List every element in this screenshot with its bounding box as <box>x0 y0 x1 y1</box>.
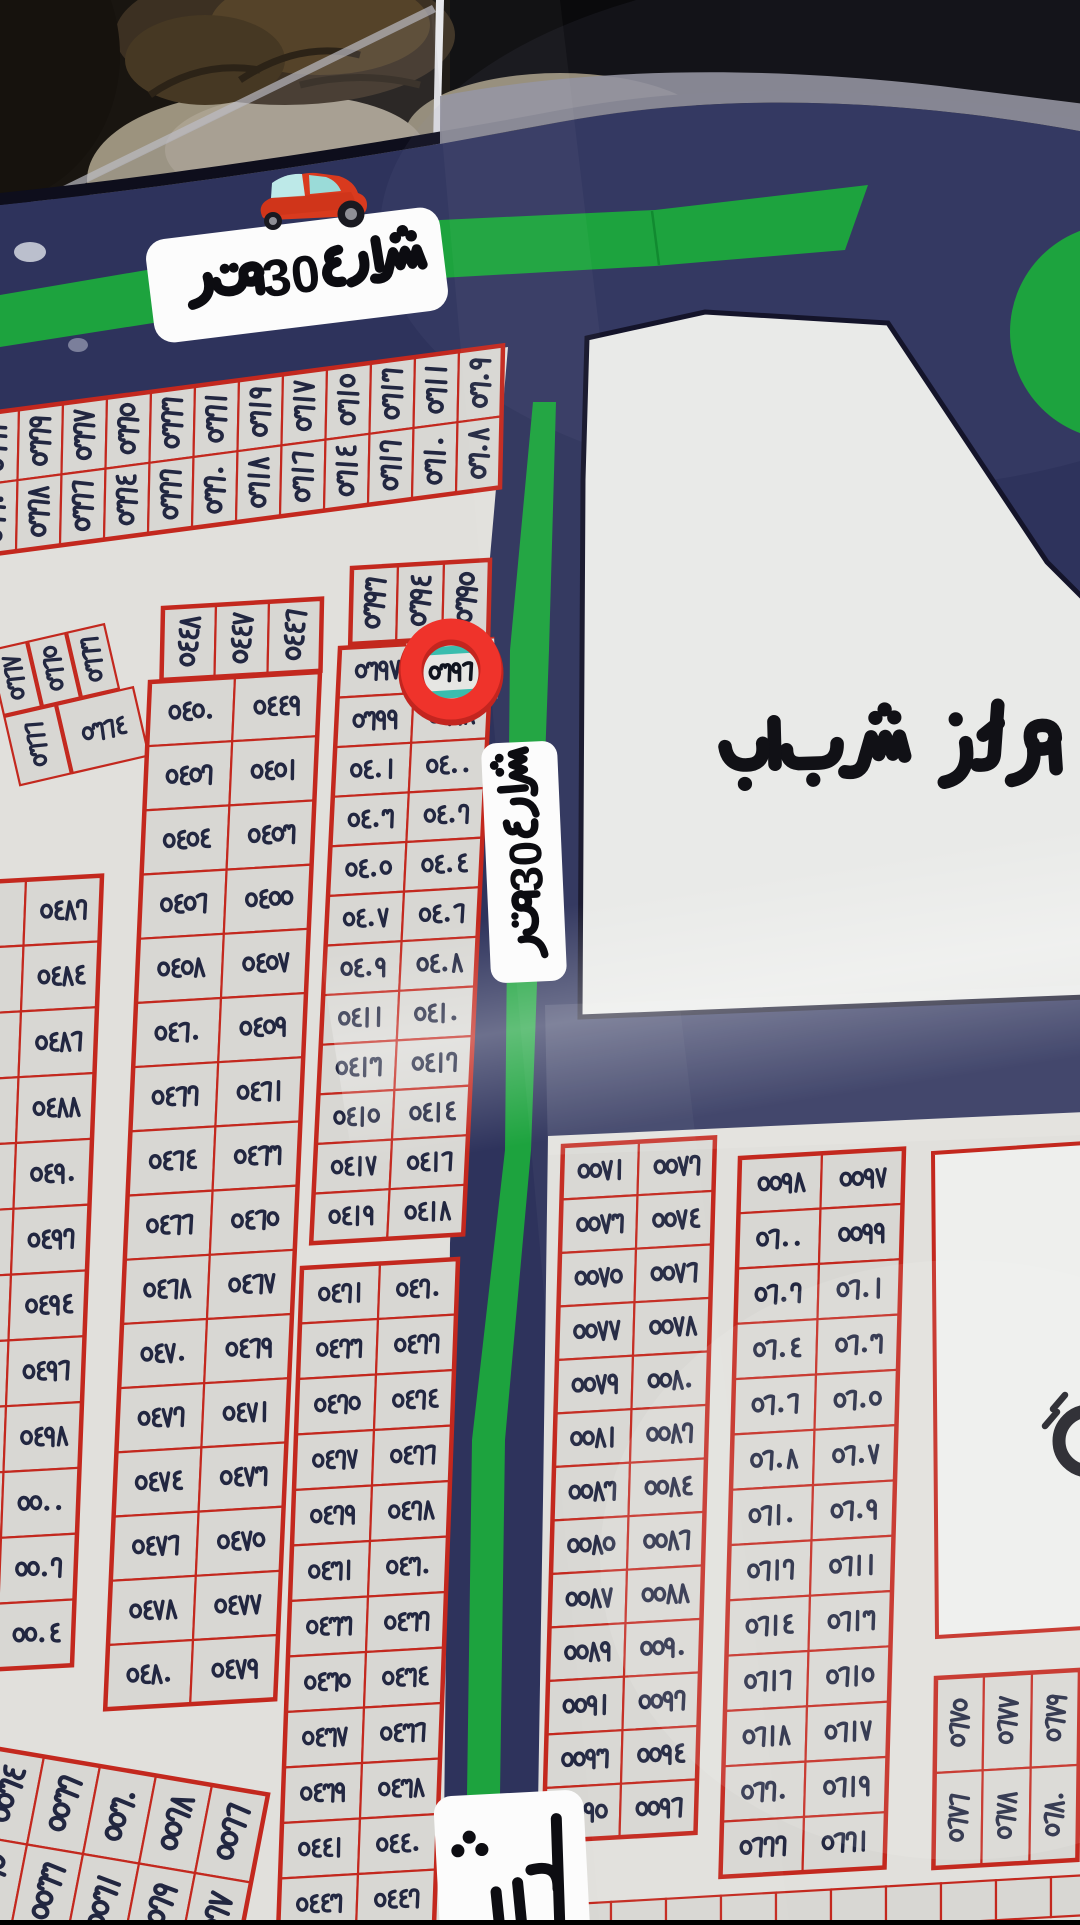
svg-text:30: 30 <box>259 244 323 309</box>
svg-text:30: 30 <box>500 840 553 893</box>
